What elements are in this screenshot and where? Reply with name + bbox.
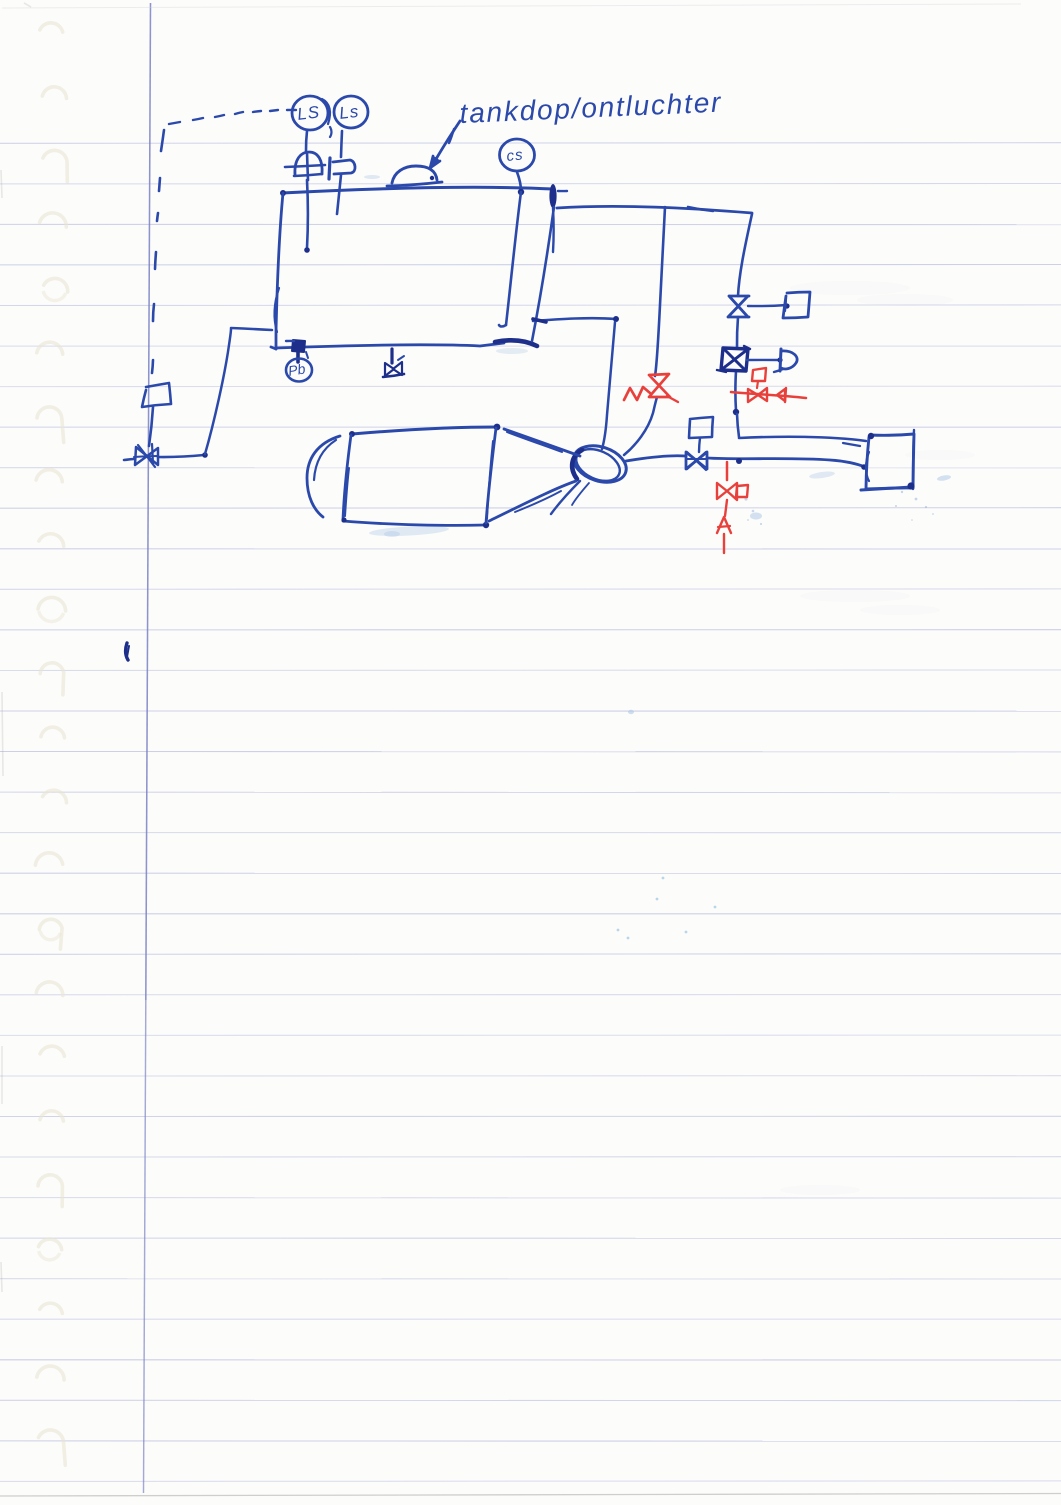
svg-text:Pb: Pb (287, 360, 307, 379)
svg-text:Ls: Ls (338, 102, 360, 123)
svg-text:cs: cs (506, 146, 525, 165)
svg-text:LS: LS (296, 102, 321, 124)
